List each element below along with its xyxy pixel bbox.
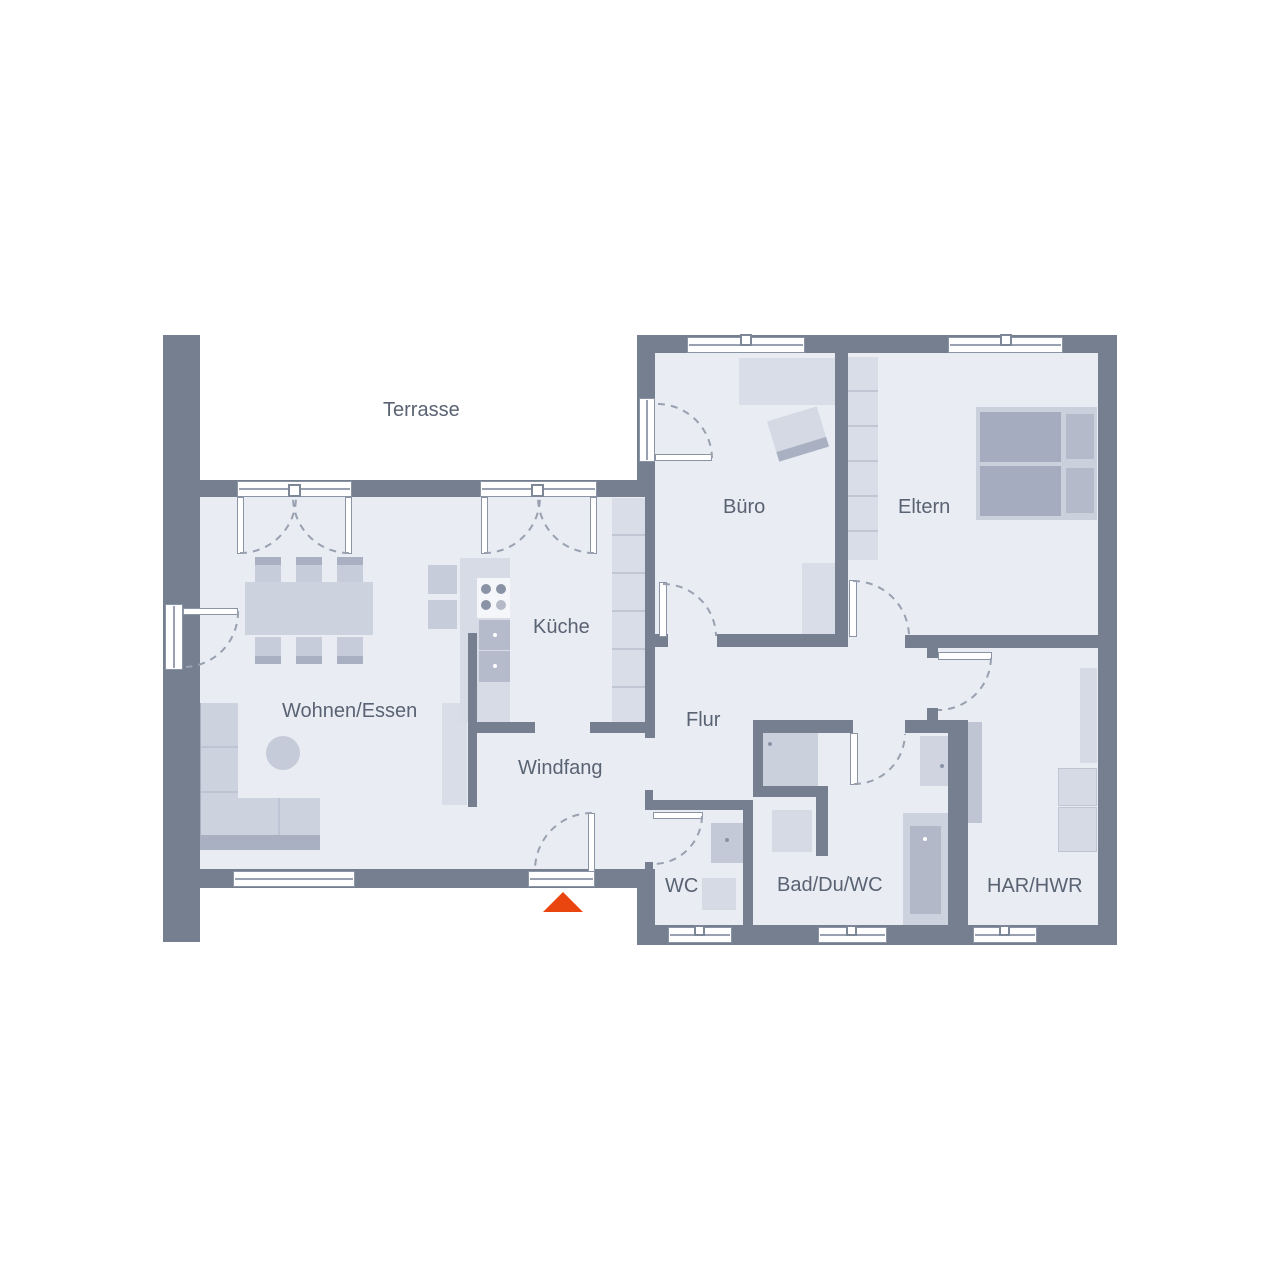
dining-chair <box>337 637 363 664</box>
room-label-terrasse: Terrasse <box>383 399 460 421</box>
terrace-door-living-west <box>165 604 183 670</box>
burner-icon <box>496 600 506 610</box>
dining-chair <box>337 557 363 584</box>
chair-backrest <box>337 656 363 664</box>
faucet-icon <box>940 764 944 768</box>
chair-backrest <box>337 557 363 565</box>
dryer <box>1058 807 1097 852</box>
terrace-door-office <box>639 398 655 462</box>
burner-icon <box>481 584 491 594</box>
kitchen-side-table <box>428 600 457 629</box>
bath-vanity <box>763 733 818 786</box>
wall-utility-door-jamb-bottom <box>927 708 938 720</box>
wall-kitchen-east <box>645 497 655 738</box>
wardrobe <box>848 357 878 560</box>
wall-utility-door-jamb-top <box>927 648 938 658</box>
mattress <box>980 466 1061 516</box>
room-label-wohnen-essen: Wohnen/Essen <box>282 700 417 722</box>
dining-chair <box>255 637 281 664</box>
wall-wc-west-lower <box>645 862 653 927</box>
sofa-cushions-vertical <box>201 703 238 835</box>
room-label-windfang: Windfang <box>518 757 603 779</box>
coffee-table <box>266 736 300 770</box>
chair-backrest <box>255 656 281 664</box>
door-leaf <box>237 497 244 554</box>
sofa-cushions-horizontal <box>238 798 320 835</box>
sofa-back-bottom <box>187 835 320 850</box>
window-handle-icon <box>999 925 1010 936</box>
dining-chair <box>296 637 322 664</box>
toilet <box>702 878 736 910</box>
dining-table <box>245 582 373 635</box>
chair-backrest <box>296 557 322 565</box>
faucet-icon <box>725 838 729 842</box>
office-shelf <box>802 563 835 634</box>
bath-washbasin <box>920 736 948 786</box>
oven-knob-icon <box>493 664 497 668</box>
pillow <box>1066 468 1094 513</box>
utility-shelf <box>968 722 982 823</box>
room-label-buero: Büro <box>723 496 765 518</box>
stove <box>477 578 510 618</box>
oven <box>479 651 510 682</box>
door-handle-icon <box>288 484 301 497</box>
oven-knob-icon <box>493 633 497 637</box>
floor-plan: Terrasse Wohnen/Essen Küche Windfang Flu… <box>0 0 1280 1280</box>
dining-chair <box>255 557 281 584</box>
door-leaf-bedroom <box>849 580 857 637</box>
wall-office-bedroom <box>835 353 848 647</box>
door-leaf-entrance <box>588 813 595 872</box>
drain-icon <box>923 837 927 841</box>
wall-shower-partition <box>816 797 828 856</box>
door-leaf-bath <box>850 733 858 785</box>
chair-backrest <box>255 557 281 565</box>
kitchen-side-table <box>428 565 457 594</box>
burner-icon <box>496 584 506 594</box>
room-label-wc: WC <box>665 875 698 897</box>
window-handle-icon <box>694 925 705 936</box>
window-handle-icon <box>846 925 857 936</box>
room-label-kueche: Küche <box>533 616 590 638</box>
wc-washbasin <box>711 823 743 863</box>
washing-machine <box>1058 768 1097 806</box>
room-label-flur: Flur <box>686 709 720 731</box>
wall-bath-north-left <box>753 720 853 733</box>
faucet-icon <box>768 742 772 746</box>
entrance-arrow-icon <box>543 892 583 912</box>
wall-bedroom-south <box>905 635 1098 648</box>
door-leaf <box>345 497 352 554</box>
wall-vanity-half <box>753 786 828 797</box>
wall-kitchen-south-right <box>590 722 655 733</box>
wall-kitchen-south-left <box>468 722 535 733</box>
burner-icon <box>481 600 491 610</box>
window-living <box>233 871 355 887</box>
window-handle-icon <box>740 334 752 346</box>
door-leaf-office-terrace <box>655 454 712 461</box>
pillow <box>1066 414 1094 459</box>
door-leaf <box>481 497 488 554</box>
door-leaf-living-west <box>183 608 238 615</box>
room-label-eltern: Eltern <box>898 496 950 518</box>
kitchen-tall-cabinets <box>612 498 648 723</box>
chair-backrest <box>296 656 322 664</box>
door-leaf-wc <box>653 812 703 819</box>
wall-wc-west-stub <box>645 790 653 810</box>
wall-exterior-right <box>1098 335 1117 945</box>
door-leaf <box>590 497 597 554</box>
mattress <box>980 412 1061 462</box>
bathtub-basin <box>910 826 941 914</box>
wall-office-south <box>717 634 848 647</box>
entrance-door-sill <box>528 871 595 887</box>
room-label-har-hwr: HAR/HWR <box>987 875 1083 897</box>
oven <box>479 620 510 650</box>
wall-bath-west-lower <box>743 810 753 930</box>
door-leaf-office <box>659 582 667 637</box>
dining-chair <box>296 557 322 584</box>
wall-wc-north <box>653 800 753 810</box>
door-leaf-utility <box>938 652 992 660</box>
door-handle-icon <box>531 484 544 497</box>
wall-bath-east <box>948 720 968 930</box>
desk <box>739 358 835 405</box>
room-label-bad-du-wc: Bad/Du/WC <box>777 874 883 896</box>
wall-living-vestibule <box>468 633 477 807</box>
shower-tray <box>772 810 812 852</box>
utility-cabinet <box>1080 668 1097 763</box>
window-handle-icon <box>1000 334 1012 346</box>
